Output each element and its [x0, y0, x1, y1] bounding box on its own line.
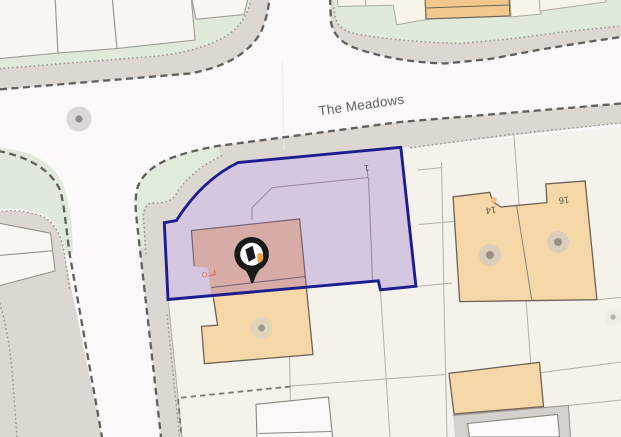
svg-text:14: 14 [485, 203, 497, 215]
svg-text:16: 16 [558, 193, 570, 205]
svg-text:1: 1 [364, 163, 370, 173]
